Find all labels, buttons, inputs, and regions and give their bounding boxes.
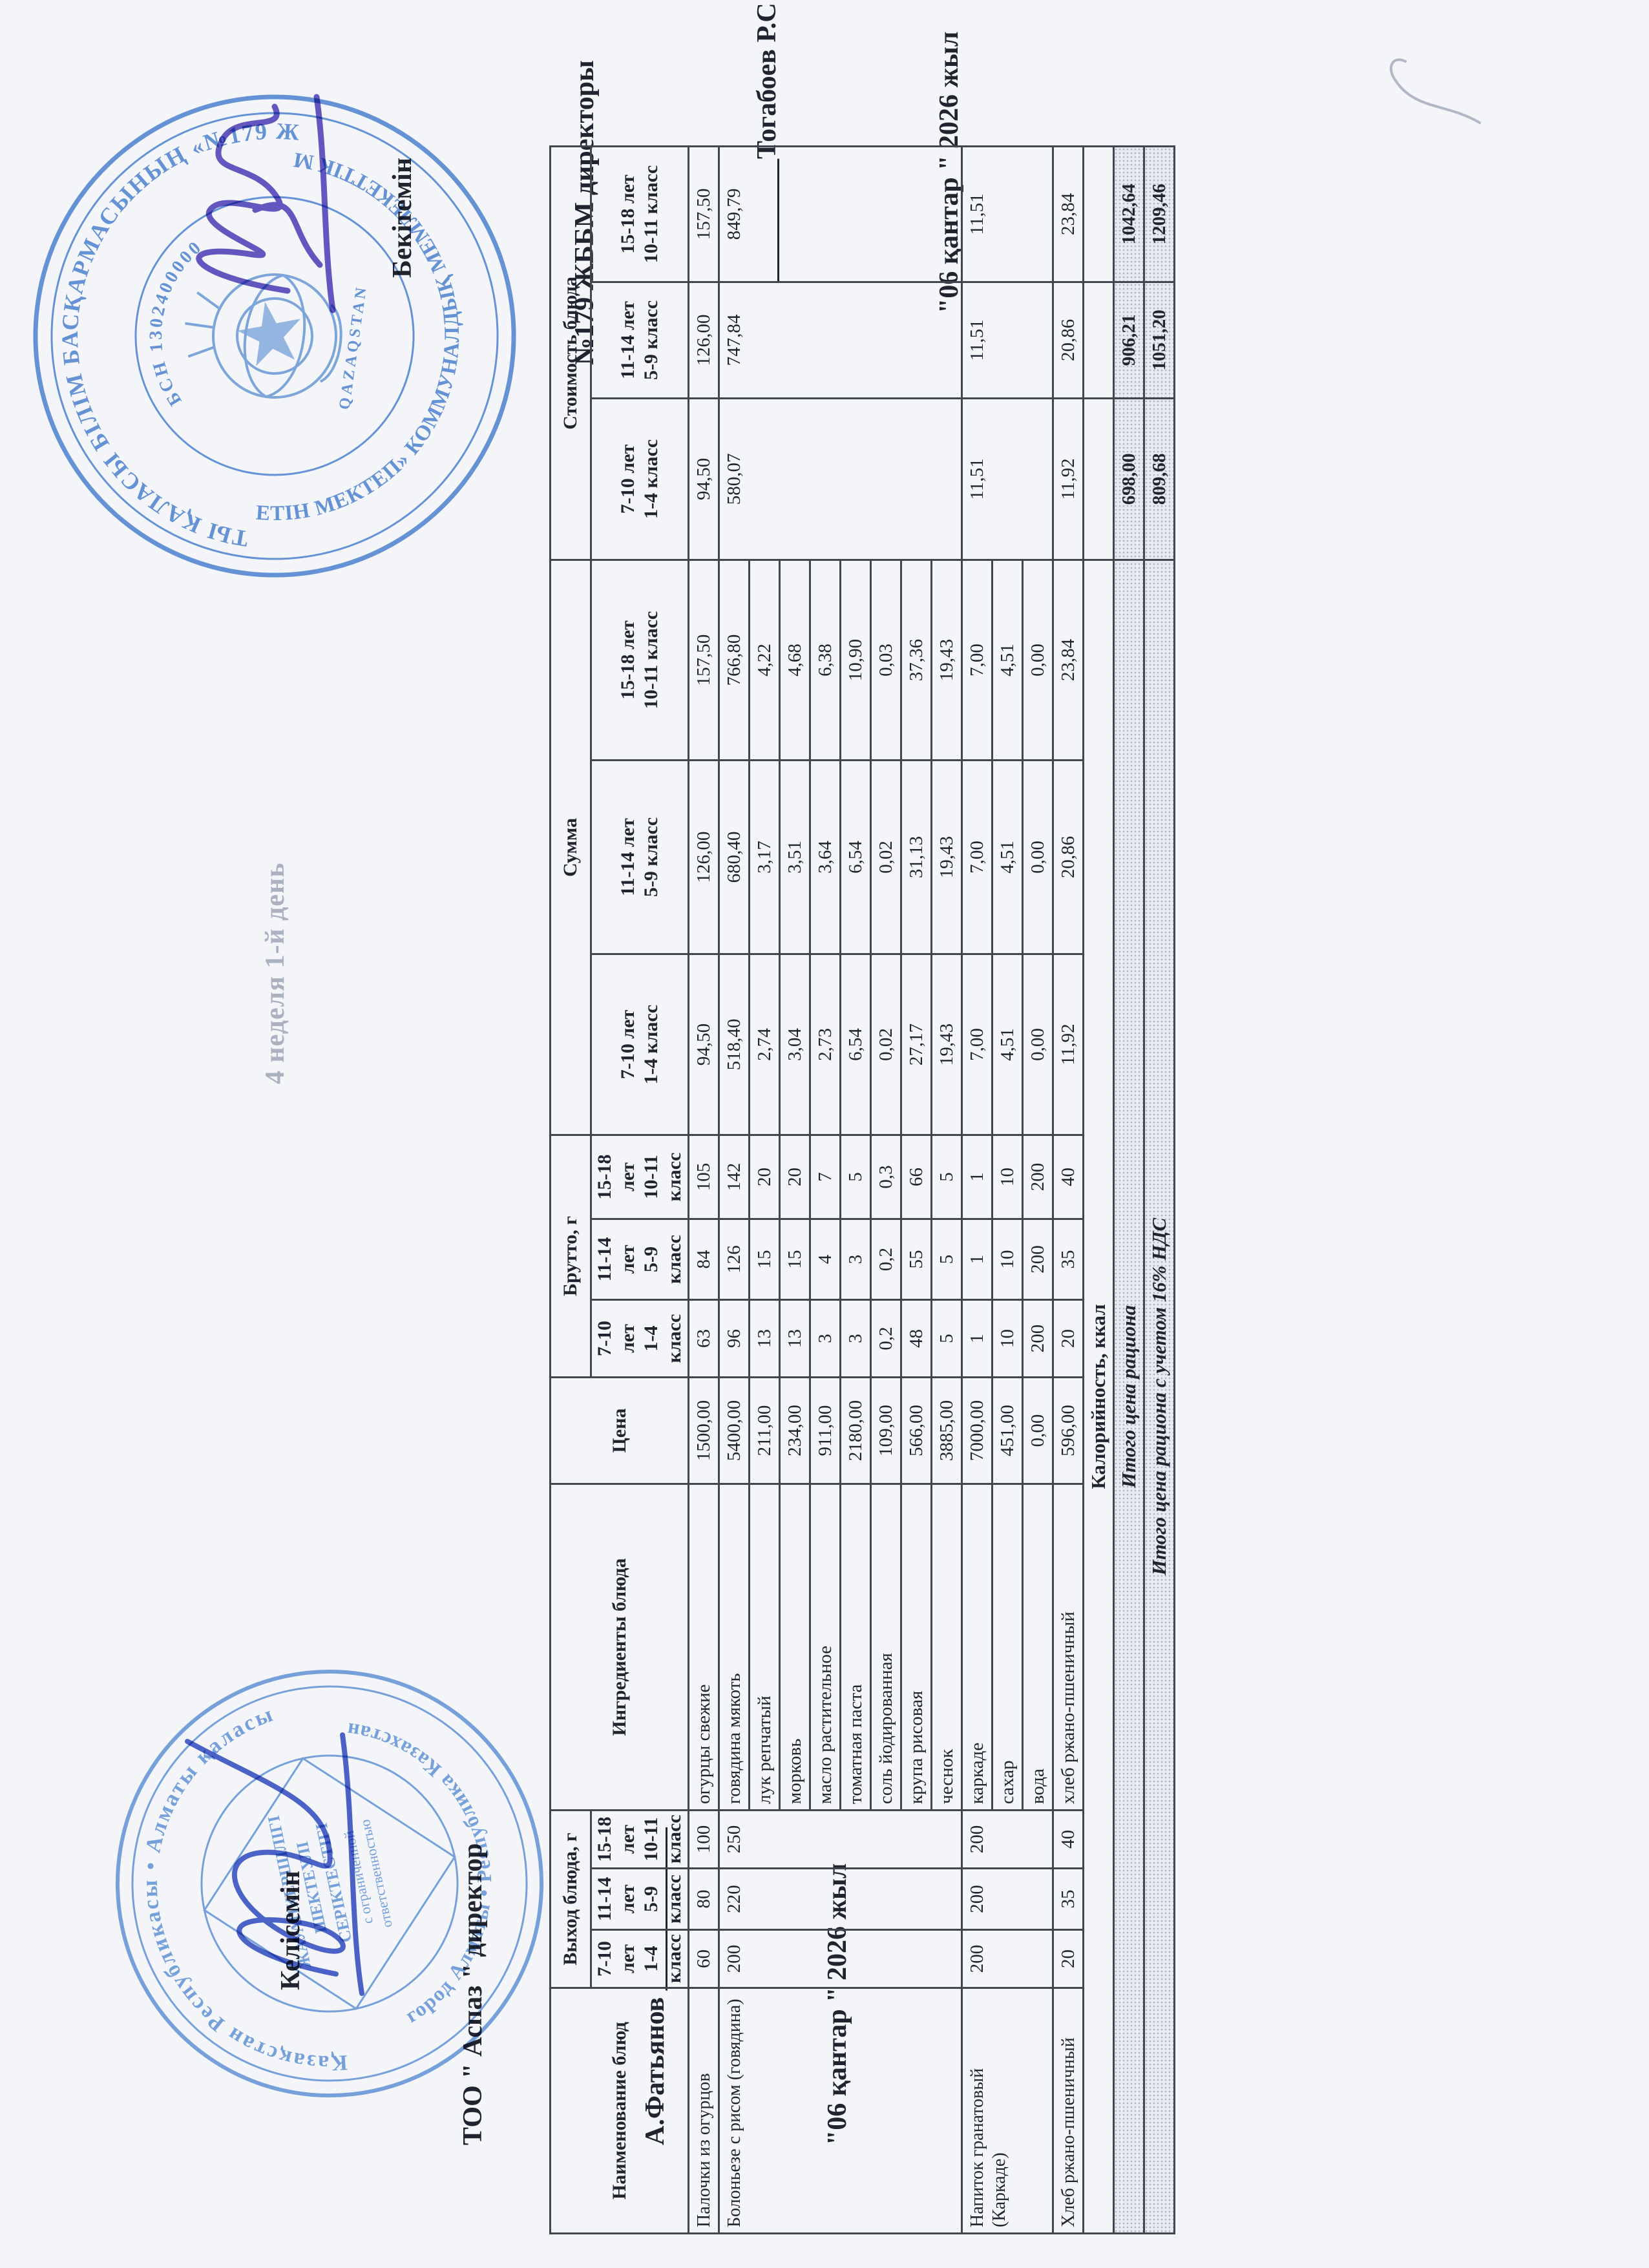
cell-brutto: 5 xyxy=(932,1219,962,1299)
cell-ingredient: лук репчатый xyxy=(750,1484,780,1810)
cell-ingredient: сахар xyxy=(993,1484,1023,1810)
cell-ingredient: морковь xyxy=(780,1484,810,1810)
cell-brutto: 10 xyxy=(993,1219,1023,1299)
cell-sum: 19,43 xyxy=(932,954,962,1135)
cell-sum: 19,43 xyxy=(932,560,962,760)
cell-cost: 580,07 xyxy=(719,398,962,560)
cell-price: 566,00 xyxy=(901,1377,932,1484)
cell-ingredient: говядина мякоть xyxy=(719,1484,750,1810)
cell-cost: 849,79 xyxy=(719,146,962,282)
cell-sum: 23,84 xyxy=(1053,560,1084,760)
age-col-sum-1: 7-10 лет1-4 класс xyxy=(591,954,689,1135)
cell-sum: 157,50 xyxy=(689,560,719,760)
cell-cost: 11,51 xyxy=(962,146,1053,282)
cell-total-value: 1042,64 xyxy=(1114,146,1144,282)
cell-cost: 11,92 xyxy=(1053,398,1084,560)
cell-sum: 27,17 xyxy=(901,954,932,1135)
total-row: Итого цена рациона 698,00 906,21 1042,64 xyxy=(1114,146,1144,2233)
cell-cost: 23,84 xyxy=(1053,146,1084,282)
cell-output: 200 xyxy=(962,1810,1053,1868)
cell-sum: 3,64 xyxy=(810,760,841,954)
cell-brutto: 7 xyxy=(810,1135,841,1219)
cell-sum: 518,40 xyxy=(719,954,750,1135)
cell-sum: 94,50 xyxy=(689,954,719,1135)
cell-dish-name: Болоньезе с рисом (говядина) xyxy=(719,1988,962,2234)
cell-total-value: 809,68 xyxy=(1144,398,1175,560)
col-header-price: Цена xyxy=(551,1377,689,1484)
cell-sum: 7,00 xyxy=(962,954,993,1135)
cell-brutto: 3 xyxy=(810,1299,841,1377)
cell-sum: 6,38 xyxy=(810,560,841,760)
cell-sum: 4,51 xyxy=(993,954,1023,1135)
header-age-row: 7-10 лет1-4 класс 11-14 лет5-9 класс 15-… xyxy=(591,146,689,2233)
cell-price: 0,00 xyxy=(1023,1377,1053,1484)
cell-sum: 680,40 xyxy=(719,760,750,954)
age-col-out-2: 11-14 лет5-9 класс xyxy=(591,1869,689,1930)
cell-sum: 4,22 xyxy=(750,560,780,760)
cell-cost: 20,86 xyxy=(1053,282,1084,398)
cell-ingredient: каркаде xyxy=(962,1484,993,1810)
cell-brutto: 0,2 xyxy=(871,1219,901,1299)
cell-sum: 0,00 xyxy=(1023,954,1053,1135)
cell-price: 3885,00 xyxy=(932,1377,962,1484)
cell-brutto: 55 xyxy=(901,1219,932,1299)
cell-total-value xyxy=(1084,146,1114,282)
cell-sum: 0,00 xyxy=(1023,760,1053,954)
col-header-ingredients: Ингредиенты блюда xyxy=(551,1484,689,1810)
cell-total-value: 698,00 xyxy=(1114,398,1144,560)
cell-brutto: 40 xyxy=(1053,1135,1084,1219)
cell-ingredient: вода xyxy=(1023,1484,1053,1810)
cell-sum: 37,36 xyxy=(901,560,932,760)
age-col-out-1: 7-10 лет1-4 класс xyxy=(591,1930,689,1988)
pencil-mark xyxy=(1376,39,1493,142)
dish-row: Напиток гранатовый (Каркаде) 200 200 200… xyxy=(962,146,993,2233)
agreement-signature xyxy=(149,1716,407,2013)
cell-price: 451,00 xyxy=(993,1377,1023,1484)
cell-output: 200 xyxy=(719,1930,962,1988)
age-col-brutto-1: 7-10 лет1-4 класс xyxy=(591,1299,689,1377)
calories-row: Калорийность, ккал xyxy=(1084,146,1114,2233)
cell-total-label: Итого цена рациона xyxy=(1114,560,1144,2233)
cell-sum: 2,73 xyxy=(810,954,841,1135)
dish-row: Хлеб ржано-пшеничный 20 35 40 хлеб ржано… xyxy=(1053,146,1084,2233)
cell-brutto: 20 xyxy=(1053,1299,1084,1377)
cell-sum: 2,74 xyxy=(750,954,780,1135)
cell-output: 220 xyxy=(719,1869,962,1930)
cell-ingredient: чеснок xyxy=(932,1484,962,1810)
cell-output: 60 xyxy=(689,1930,719,1988)
cell-sum: 3,17 xyxy=(750,760,780,954)
scanned-menu-sheet: Келісемін ТОО " Аспаз " директор А.Фатья… xyxy=(0,0,1649,2268)
cell-sum: 766,80 xyxy=(719,560,750,760)
age-col-brutto-3: 15-18 лет10-11 класс xyxy=(591,1135,689,1219)
cell-dish-name: Напиток гранатовый (Каркаде) xyxy=(962,1988,1053,2234)
cell-brutto: 3 xyxy=(841,1299,871,1377)
approval-signature xyxy=(126,81,359,326)
dish-row: Палочки из огурцов 60 80 100 огурцы свеж… xyxy=(689,146,719,2233)
dish-row: Болоньезе с рисом (говядина) 200 220 250… xyxy=(719,146,750,2233)
cell-price: 2180,00 xyxy=(841,1377,871,1484)
cell-output: 20 xyxy=(1053,1930,1084,1988)
col-header-cost-group: Стоимость блюда xyxy=(551,146,591,560)
cell-total-value xyxy=(1084,282,1114,398)
cell-brutto: 66 xyxy=(901,1135,932,1219)
cell-sum: 3,51 xyxy=(780,760,810,954)
cell-brutto: 20 xyxy=(750,1135,780,1219)
cell-output: 80 xyxy=(689,1869,719,1930)
cell-sum: 6,54 xyxy=(841,760,871,954)
cell-output: 100 xyxy=(689,1810,719,1868)
cell-output: 200 xyxy=(962,1869,1053,1930)
age-col-brutto-2: 11-14 лет5-9 класс xyxy=(591,1219,689,1299)
cell-brutto: 200 xyxy=(1023,1135,1053,1219)
cell-sum: 0,00 xyxy=(1023,560,1053,760)
cell-total-value: 1209,46 xyxy=(1144,146,1175,282)
cell-price: 5400,00 xyxy=(719,1377,750,1484)
cell-sum: 4,51 xyxy=(993,760,1023,954)
cell-brutto: 1 xyxy=(962,1135,993,1219)
cell-sum: 0,02 xyxy=(871,760,901,954)
cell-sum: 0,02 xyxy=(871,954,901,1135)
cell-output: 40 xyxy=(1053,1810,1084,1868)
age-col-cost-3: 15-18 лет10-11 класс xyxy=(591,146,689,282)
cell-cost: 11,51 xyxy=(962,398,1053,560)
cell-output: 250 xyxy=(719,1810,962,1868)
age-col-out-3: 15-18 лет10-11 класс xyxy=(591,1810,689,1868)
cell-sum: 31,13 xyxy=(901,760,932,954)
cell-brutto: 35 xyxy=(1053,1219,1084,1299)
cell-sum: 4,51 xyxy=(993,560,1023,760)
cell-ingredient: огурцы свежие xyxy=(689,1484,719,1810)
cell-total-value: 1051,20 xyxy=(1144,282,1175,398)
cell-brutto: 13 xyxy=(780,1299,810,1377)
cell-brutto: 5 xyxy=(932,1135,962,1219)
cell-brutto: 10 xyxy=(993,1299,1023,1377)
total-vat-row: Итого цена рациона с учетом 16% НДС 809,… xyxy=(1144,146,1175,2233)
cell-price: 1500,00 xyxy=(689,1377,719,1484)
cell-brutto: 1 xyxy=(962,1299,993,1377)
cell-brutto: 63 xyxy=(689,1299,719,1377)
cell-brutto: 20 xyxy=(780,1135,810,1219)
cell-cost: 94,50 xyxy=(689,398,719,560)
cell-cost: 747,84 xyxy=(719,282,962,398)
age-col-cost-2: 11-14 лет5-9 класс xyxy=(591,282,689,398)
cell-sum: 6,54 xyxy=(841,954,871,1135)
age-col-sum-3: 15-18 лет10-11 класс xyxy=(591,560,689,760)
cell-brutto: 126 xyxy=(719,1219,750,1299)
cell-brutto: 84 xyxy=(689,1219,719,1299)
cell-brutto: 5 xyxy=(841,1135,871,1219)
cell-sum: 7,00 xyxy=(962,760,993,954)
cell-sum: 3,04 xyxy=(780,954,810,1135)
cell-total-value xyxy=(1084,398,1114,560)
cell-brutto: 105 xyxy=(689,1135,719,1219)
cell-output: 35 xyxy=(1053,1869,1084,1930)
cell-cost: 11,51 xyxy=(962,282,1053,398)
cell-brutto: 10 xyxy=(993,1135,1023,1219)
cell-price: 7000,00 xyxy=(962,1377,993,1484)
cell-ingredient: соль йодированная xyxy=(871,1484,901,1810)
cell-brutto: 15 xyxy=(750,1219,780,1299)
cell-brutto: 200 xyxy=(1023,1219,1053,1299)
cell-sum: 7,00 xyxy=(962,560,993,760)
menu-table: Наименование блюд Выход блюда, г Ингреди… xyxy=(549,145,1175,2234)
cell-sum: 10,90 xyxy=(841,560,871,760)
cell-total-value: 906,21 xyxy=(1114,282,1144,398)
age-col-sum-2: 11-14 лет5-9 класс xyxy=(591,760,689,954)
cell-price: 911,00 xyxy=(810,1377,841,1484)
cell-ingredient: масло растительное xyxy=(810,1484,841,1810)
col-header-sum-group: Сумма xyxy=(551,560,591,1135)
cell-price: 596,00 xyxy=(1053,1377,1084,1484)
cell-brutto: 200 xyxy=(1023,1299,1053,1377)
cell-brutto: 5 xyxy=(932,1299,962,1377)
cell-sum: 20,86 xyxy=(1053,760,1084,954)
cell-brutto: 13 xyxy=(750,1299,780,1377)
cell-dish-name: Хлеб ржано-пшеничный xyxy=(1053,1988,1084,2234)
age-col-cost-1: 7-10 лет1-4 класс xyxy=(591,398,689,560)
cell-ingredient: крупа рисовая xyxy=(901,1484,932,1810)
cell-brutto: 48 xyxy=(901,1299,932,1377)
cell-brutto: 4 xyxy=(810,1219,841,1299)
cell-price: 109,00 xyxy=(871,1377,901,1484)
cell-brutto: 1 xyxy=(962,1219,993,1299)
cell-brutto: 15 xyxy=(780,1219,810,1299)
cell-brutto: 96 xyxy=(719,1299,750,1377)
cell-cost: 157,50 xyxy=(689,146,719,282)
cell-brutto: 0,3 xyxy=(871,1135,901,1219)
col-header-brutto-group: Брутто, г xyxy=(551,1135,591,1377)
cell-sum: 0,03 xyxy=(871,560,901,760)
cell-total-label: Калорийность, ккал xyxy=(1084,560,1114,2233)
cell-cost: 126,00 xyxy=(689,282,719,398)
cell-total-label: Итого цена рациона с учетом 16% НДС xyxy=(1144,560,1175,2233)
cell-sum: 19,43 xyxy=(932,760,962,954)
cell-brutto: 0,2 xyxy=(871,1299,901,1377)
cell-price: 211,00 xyxy=(750,1377,780,1484)
cell-ingredient: томатная паста xyxy=(841,1484,871,1810)
cell-sum: 11,92 xyxy=(1053,954,1084,1135)
cell-output: 200 xyxy=(962,1930,1053,1988)
cell-price: 234,00 xyxy=(780,1377,810,1484)
cell-sum: 126,00 xyxy=(689,760,719,954)
cell-sum: 4,68 xyxy=(780,560,810,760)
cell-brutto: 142 xyxy=(719,1135,750,1219)
cell-dish-name: Палочки из огурцов xyxy=(689,1988,719,2234)
cell-ingredient: хлеб ржано-пшеничный xyxy=(1053,1484,1084,1810)
cell-brutto: 3 xyxy=(841,1219,871,1299)
week-day-label: 4 неделя 1-й день xyxy=(260,863,291,1084)
